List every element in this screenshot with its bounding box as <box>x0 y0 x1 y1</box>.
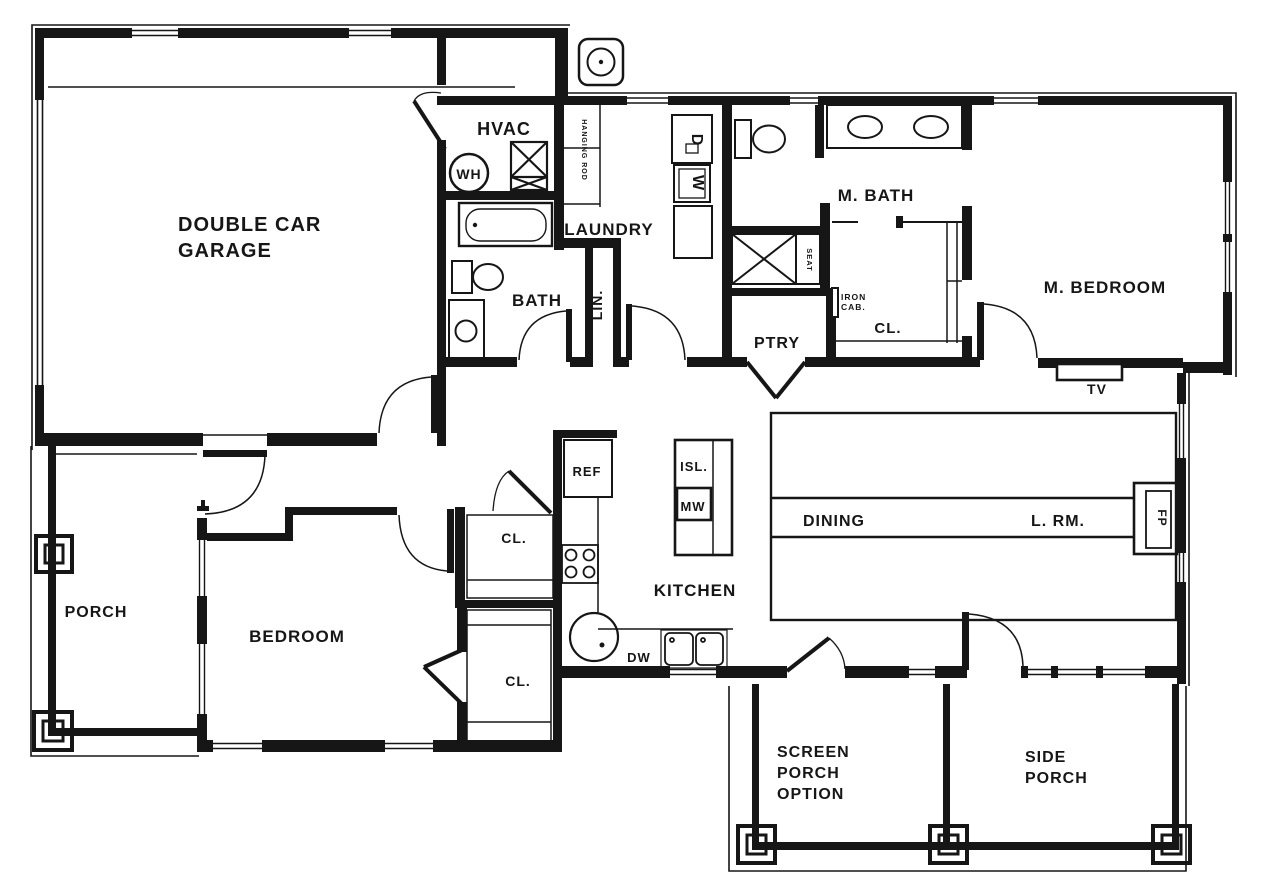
garage-window-1 <box>132 31 178 36</box>
bathtub-icon <box>459 203 552 246</box>
label-island: ISL. <box>680 459 708 474</box>
label-side-porch-line2: PORCH <box>1025 770 1088 787</box>
pantry-door-leaf-2 <box>776 362 805 398</box>
hall-closet-door-swing <box>493 471 509 511</box>
bedroom-door-swing <box>399 515 447 571</box>
front-door-swing <box>205 455 265 514</box>
hvac-door-swing <box>414 92 441 101</box>
condenser-icon <box>579 39 623 85</box>
label-tv: TV <box>1087 381 1107 397</box>
labels: DOUBLE CAR GARAGE HVAC WH LAUNDRY HANGIN… <box>65 119 1169 803</box>
label-living-room: L. RM. <box>1031 513 1085 530</box>
iron-cabinet-icon <box>832 288 838 317</box>
master-toilet-icon <box>735 120 785 158</box>
screen-porch-window <box>909 670 935 675</box>
mbath-window <box>790 98 818 103</box>
bedroom-closet-door-leaf-1 <box>424 650 462 667</box>
label-bath: BATH <box>512 291 562 310</box>
label-closet-hall: CL. <box>501 530 527 546</box>
label-hanging-rod: HANGING ROD <box>580 119 587 181</box>
side-porch-door-swing <box>969 614 1023 666</box>
bedroom-west-window-2 <box>200 644 205 714</box>
garage-door-leaf <box>431 375 439 433</box>
label-master-closet: CL. <box>874 320 901 337</box>
lrm-east-window-2 <box>1180 553 1184 582</box>
label-dining: DINING <box>803 513 865 530</box>
label-water-heater: WH <box>456 166 481 182</box>
label-refrigerator: REF <box>573 464 602 479</box>
porch-posts <box>34 536 1190 863</box>
kitchen-sink-window <box>670 670 716 675</box>
label-porch: PORCH <box>65 604 128 621</box>
label-dishwasher: DW <box>627 650 651 665</box>
floor-plan-drawing: DOUBLE CAR GARAGE HVAC WH LAUNDRY HANGIN… <box>0 0 1276 874</box>
label-bedroom: BEDROOM <box>249 627 345 646</box>
bedroom-door-leaf <box>447 509 454 573</box>
hall-closet-door-leaf <box>509 471 551 513</box>
hall-door-swing <box>632 306 685 360</box>
front-door-leaf <box>203 450 267 457</box>
floor-plan-page: DOUBLE CAR GARAGE HVAC WH LAUNDRY HANGIN… <box>0 0 1276 874</box>
bedroom-closet-door-leaf-2 <box>424 667 462 704</box>
island-icon <box>675 440 732 555</box>
label-pantry: PTRY <box>754 335 800 352</box>
label-hvac: HVAC <box>477 119 531 139</box>
label-microwave: MW <box>680 499 705 514</box>
tv-niche-icon <box>1057 364 1122 380</box>
label-garage-line1: DOUBLE CAR <box>178 214 321 236</box>
pantry-door-leaf-1 <box>747 362 776 398</box>
bath-door-swing <box>519 311 566 360</box>
garage-window-2 <box>349 31 391 36</box>
label-fireplace: FP <box>1155 509 1169 526</box>
bedroom-south-window-1 <box>213 744 262 749</box>
label-side-porch-line1: SIDE <box>1025 749 1066 766</box>
label-master-bedroom: M. BEDROOM <box>1044 278 1166 297</box>
walls <box>35 28 1232 850</box>
side-porch-window-band <box>1028 670 1145 675</box>
double-sink-icon <box>661 630 727 668</box>
range-icon <box>562 545 598 583</box>
label-screen-porch-line2: PORCH <box>777 765 840 782</box>
toilet-icon <box>452 261 503 293</box>
label-iron-cab-line1: IRON <box>841 292 866 302</box>
hvac-door-leaf <box>414 101 445 149</box>
master-door-leaf <box>977 302 984 360</box>
hall-door-leaf <box>626 304 632 360</box>
furnace-icon <box>511 142 547 190</box>
label-dryer: D <box>688 134 705 147</box>
bedroom-south-window-2 <box>385 744 433 749</box>
lrm-east-window-1 <box>1180 404 1184 458</box>
label-screen-porch-line1: SCREEN <box>777 744 850 761</box>
mbed-top-window <box>994 98 1038 103</box>
label-master-bath: M. BATH <box>838 186 915 205</box>
vanity-sink-icon <box>449 300 484 361</box>
label-iron-cab-line2: CAB. <box>841 302 866 312</box>
label-linen: LIN. <box>589 290 605 320</box>
laundry-window <box>627 98 668 103</box>
screen-porch-door-leaf <box>787 638 829 671</box>
label-laundry: LAUNDRY <box>564 220 653 239</box>
label-garage-line2: GARAGE <box>178 240 272 262</box>
label-screen-porch-line3: OPTION <box>777 786 844 803</box>
label-washer: W <box>689 175 706 191</box>
label-shower-seat: SEAT <box>805 248 814 271</box>
screen-porch-door-swing <box>829 638 845 669</box>
label-closet-bedroom: CL. <box>505 673 531 689</box>
master-door-swing <box>984 304 1037 358</box>
bath-door-leaf <box>566 309 572 362</box>
doors <box>203 92 1037 704</box>
corner-sink-icon <box>570 613 618 661</box>
bedroom-west-window-1 <box>200 540 205 596</box>
label-kitchen: KITCHEN <box>654 581 737 600</box>
garage-door-swing <box>379 377 431 433</box>
master-vanity-icon <box>827 105 962 148</box>
